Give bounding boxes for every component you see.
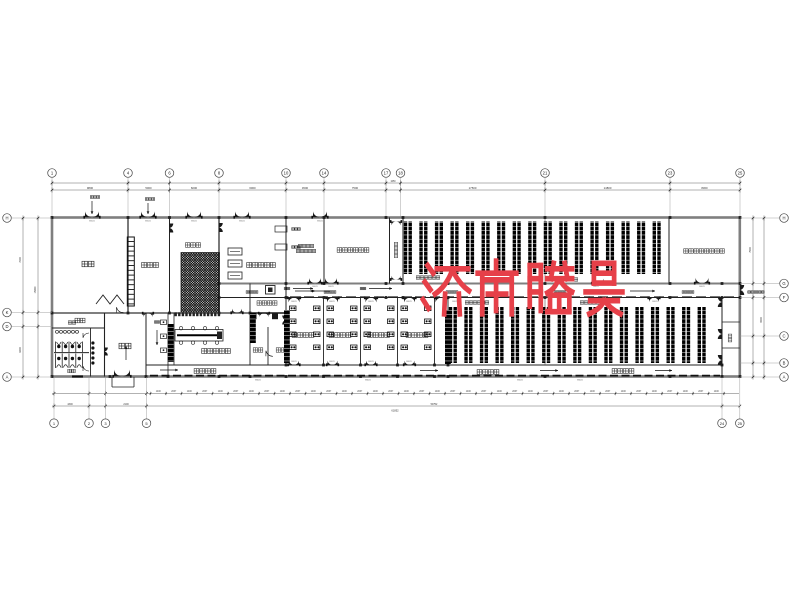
svg-text:4300: 4300	[67, 403, 73, 406]
svg-text:2067: 2067	[202, 391, 208, 393]
svg-text:2067: 2067	[543, 391, 549, 393]
svg-text:7500: 7500	[749, 247, 752, 253]
svg-text:25: 25	[738, 421, 743, 426]
svg-text:6000: 6000	[191, 186, 198, 190]
svg-text:17: 17	[384, 171, 389, 176]
svg-text:2067: 2067	[605, 391, 611, 393]
svg-text:9000: 9000	[760, 317, 763, 323]
svg-text:B: B	[783, 361, 786, 366]
svg-text:A: A	[6, 375, 9, 380]
svg-text:M1021: M1021	[368, 301, 373, 303]
svg-text:2100: 2100	[123, 403, 129, 406]
svg-text:K: K	[6, 310, 9, 315]
svg-text:1400: 1400	[559, 391, 565, 393]
svg-text:M1521: M1521	[89, 221, 95, 223]
svg-text:1400: 1400	[311, 391, 317, 393]
svg-text:7500: 7500	[352, 186, 359, 190]
svg-text:2067: 2067	[233, 391, 239, 393]
svg-text:M1021: M1021	[329, 301, 334, 303]
svg-text:18: 18	[398, 171, 403, 176]
svg-text:2067: 2067	[419, 391, 425, 393]
svg-text:M1021: M1021	[291, 301, 296, 303]
svg-text:1400: 1400	[373, 391, 379, 393]
svg-text:2067: 2067	[481, 391, 487, 393]
svg-text:M1021: M1021	[406, 361, 411, 363]
svg-text:17500: 17500	[469, 186, 477, 190]
svg-text:8300: 8300	[701, 186, 708, 190]
svg-text:1400: 1400	[342, 391, 348, 393]
svg-text:2067: 2067	[388, 391, 394, 393]
svg-text:1400: 1400	[156, 391, 162, 393]
svg-text:2067: 2067	[357, 391, 363, 393]
svg-text:2067: 2067	[636, 391, 642, 393]
svg-text:M1021: M1021	[328, 286, 333, 288]
svg-text:M1521: M1521	[317, 221, 323, 223]
svg-text:61852: 61852	[391, 409, 399, 413]
svg-text:M1021: M1021	[329, 361, 334, 363]
svg-text:1050: 1050	[390, 181, 396, 183]
svg-text:M1021: M1021	[291, 361, 296, 363]
svg-text:1400: 1400	[435, 391, 441, 393]
svg-text:H: H	[5, 216, 8, 221]
svg-text:1400: 1400	[621, 391, 627, 393]
svg-text:1400: 1400	[466, 391, 472, 393]
svg-text:1400: 1400	[280, 391, 286, 393]
svg-text:M1521: M1521	[239, 221, 245, 223]
svg-text:M1521: M1521	[191, 221, 197, 223]
svg-text:2067: 2067	[512, 391, 518, 393]
svg-text:1400: 1400	[528, 391, 534, 393]
svg-text:M1021: M1021	[652, 301, 657, 303]
svg-text:5000: 5000	[145, 186, 152, 190]
svg-text:M1021: M1021	[312, 286, 317, 288]
svg-text:M1021: M1021	[577, 380, 583, 382]
svg-text:1400: 1400	[249, 391, 255, 393]
svg-text:1400: 1400	[683, 391, 689, 393]
svg-text:1400: 1400	[187, 391, 193, 393]
svg-text:M1021: M1021	[452, 301, 457, 303]
svg-text:21: 21	[543, 171, 548, 176]
svg-text:2067: 2067	[698, 391, 704, 393]
svg-text:1400: 1400	[497, 391, 503, 393]
svg-text:M1021: M1021	[255, 380, 261, 382]
svg-text:G: G	[782, 281, 785, 286]
svg-text:H: H	[782, 216, 785, 221]
svg-text:M1521: M1521	[145, 221, 151, 223]
svg-text:M1021: M1021	[406, 301, 411, 303]
svg-text:1400: 1400	[652, 391, 658, 393]
svg-text:6000: 6000	[249, 186, 256, 190]
svg-text:24: 24	[720, 421, 725, 426]
svg-text:14800: 14800	[604, 186, 612, 190]
svg-text:14: 14	[322, 171, 327, 176]
svg-text:10: 10	[284, 171, 289, 176]
svg-text:D: D	[5, 324, 8, 329]
svg-text:2067: 2067	[326, 391, 332, 393]
svg-text:6300: 6300	[19, 347, 22, 353]
svg-text:2067: 2067	[450, 391, 456, 393]
svg-text:23: 23	[668, 171, 673, 176]
svg-text:1400: 1400	[714, 391, 720, 393]
svg-text:M1021: M1021	[699, 286, 704, 288]
svg-text:A: A	[783, 375, 786, 380]
svg-text:2067: 2067	[171, 391, 177, 393]
svg-text:1400: 1400	[590, 391, 596, 393]
svg-text:2067: 2067	[295, 391, 301, 393]
svg-text:1400: 1400	[218, 391, 224, 393]
svg-text:C: C	[782, 334, 785, 339]
svg-text:7200: 7200	[19, 257, 22, 263]
svg-text:M1021: M1021	[593, 286, 598, 288]
svg-text:2067: 2067	[667, 391, 673, 393]
svg-text:M1021: M1021	[368, 361, 373, 363]
svg-text:2067: 2067	[574, 391, 580, 393]
svg-text:59752: 59752	[431, 403, 438, 406]
svg-text:1400: 1400	[404, 391, 410, 393]
svg-text:M1021: M1021	[517, 380, 523, 382]
svg-text:F: F	[783, 295, 786, 300]
svg-text:15900: 15900	[34, 286, 37, 293]
svg-text:9800: 9800	[87, 186, 94, 190]
svg-text:2067: 2067	[264, 391, 270, 393]
svg-text:M1021: M1021	[365, 380, 371, 382]
svg-text:4500: 4500	[302, 186, 309, 190]
svg-text:25: 25	[738, 171, 743, 176]
